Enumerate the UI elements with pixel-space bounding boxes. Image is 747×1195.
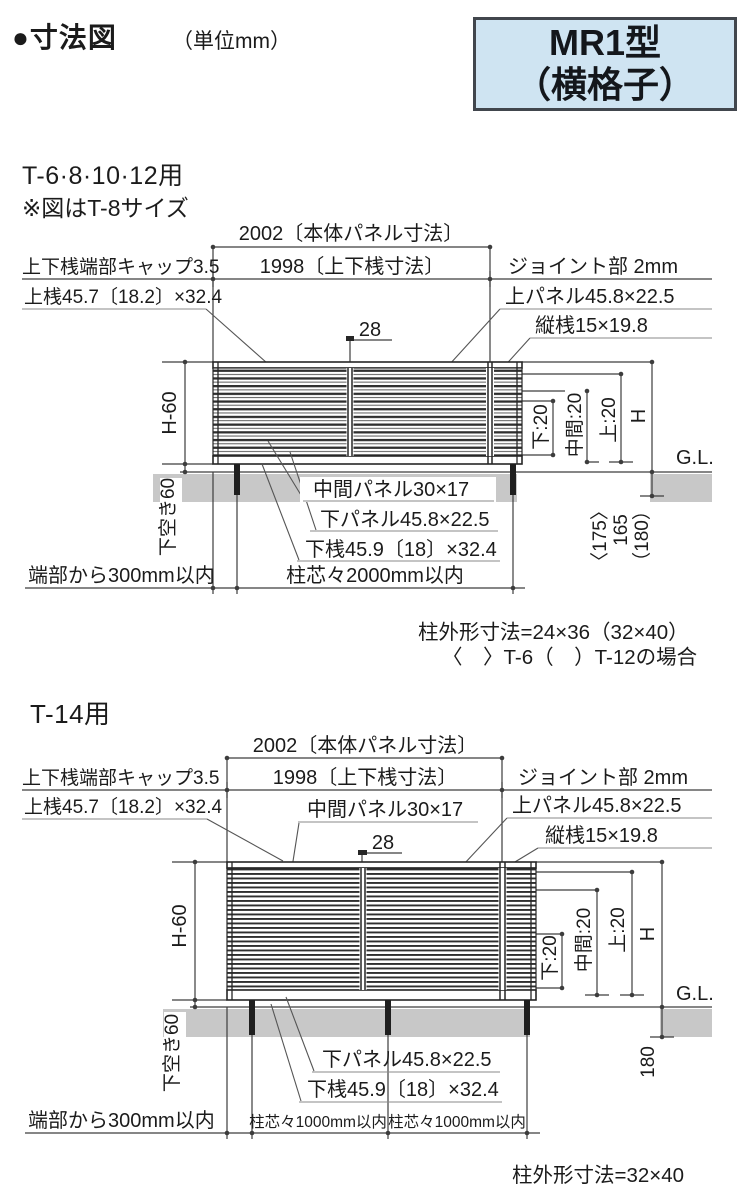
dim-embed: 180 [638, 1046, 659, 1078]
label-vertical-rail: 縦桟15×19.8 [535, 314, 648, 337]
label-bottom-gap: 下空き60 [157, 478, 179, 556]
dim-post-pitch: 柱芯々2000mm以内 [286, 564, 464, 587]
joint-mullion-mask [486, 368, 494, 456]
label-joint: ジョイント部 2mm [518, 766, 688, 789]
bottom-rail [213, 456, 522, 464]
dim-pitch-bottom: 下:20 [540, 935, 561, 980]
dim-28: 28 [359, 319, 381, 341]
joint-cap-marker [346, 336, 354, 341]
dim-panel-width: 2002〔本体パネル寸法〕 [239, 222, 464, 245]
label-mid-panel: 中間パネル30×17 [313, 478, 469, 501]
bottom-rail [227, 990, 536, 1000]
dim-rail-width: 1998〔上下桟寸法〕 [273, 766, 458, 789]
fence-panel-1 [213, 336, 522, 464]
label-top-rail: 上桟45.7〔18.2〕×32.4 [24, 286, 222, 308]
label-ground-level: G.L. [676, 983, 714, 1005]
ground-strip-left [163, 1009, 530, 1037]
dim-total-height: H [637, 927, 659, 941]
drawing-t14: 2002〔本体パネル寸法〕 1998〔上下桟寸法〕 上下桟端部キャップ3.5 ジ… [22, 734, 714, 1139]
dim-pitch-top: 上:20 [598, 397, 620, 442]
catalog-page: ●寸法図 （単位mm） MR1型 （横格子） T-6·8·10·12用 ※図はT… [0, 0, 747, 1195]
label-top-panel: 上パネル45.8×22.5 [505, 285, 675, 308]
label-top-rail: 上桟45.7〔18.2〕×32.4 [24, 796, 222, 818]
dim-edge-offset: 端部から300mm以内 [28, 1109, 215, 1132]
dim-panel-width: 2002〔本体パネル寸法〕 [253, 734, 478, 757]
horizontal-slats [227, 868, 536, 990]
label-end-cap: 上下桟端部キャップ3.5 [22, 767, 219, 789]
dim-h-60: H-60 [169, 904, 191, 947]
label-vertical-rail: 縦桟15×19.8 [545, 824, 658, 847]
drawing-t6-t12: 2002〔本体パネル寸法〕 1998〔上下桟寸法〕 上下桟端部キャップ3.5 ジ… [22, 222, 714, 594]
dim-h-60: H-60 [159, 391, 181, 434]
label-bottom-rail: 下桟45.9〔18〕×32.4 [305, 538, 497, 561]
post [249, 1000, 255, 1035]
post [510, 464, 516, 495]
label-bottom-panel: 下パネル45.8×22.5 [322, 1049, 492, 1071]
dim-post-pitch-1: 柱芯々1000mm以内 [249, 1113, 387, 1131]
label-top-panel: 上パネル45.8×22.5 [512, 794, 682, 817]
dim-total-height: H [628, 409, 650, 423]
ground-strip-right [650, 474, 712, 502]
label-ground-level: G.L. [676, 447, 714, 469]
top-rail [213, 362, 522, 368]
dim-pitch-bottom: 下:20 [531, 404, 552, 449]
dim-pitch-middle: 中間:20 [573, 908, 595, 972]
label-bottom-rail: 下桟45.9〔18〕×32.4 [307, 1078, 499, 1101]
joint-cap-marker [358, 850, 367, 855]
horizontal-slats [213, 368, 522, 456]
dim-embed: 165 [611, 514, 632, 546]
top-rail [227, 862, 536, 868]
label-end-cap: 上下桟端部キャップ3.5 [22, 256, 219, 278]
dim-embed-t6: 〈175〉 [589, 501, 611, 571]
dim-rail-width: 1998〔上下桟寸法〕 [260, 255, 445, 278]
label-mid-panel: 中間パネル30×17 [307, 798, 463, 821]
post [524, 1000, 530, 1035]
dim-pitch-middle: 中間:20 [564, 393, 586, 457]
dim-pitch-top: 上:20 [607, 907, 629, 952]
dim-post-pitch-2: 柱芯々1000mm以内 [388, 1113, 526, 1131]
dim-edge-offset: 端部から300mm以内 [28, 564, 215, 587]
label-bottom-gap: 下空き60 [161, 1014, 183, 1092]
post [385, 1000, 391, 1035]
dim-embed-t12: （180） [631, 501, 653, 571]
dim-28: 28 [372, 832, 394, 854]
dimension-drawings: 2002〔本体パネル寸法〕 1998〔上下桟寸法〕 上下桟端部キャップ3.5 ジ… [0, 0, 747, 1195]
ground-strip-right [660, 1009, 712, 1037]
post [234, 464, 240, 495]
fence-panel-2 [227, 850, 536, 1000]
label-bottom-panel: 下パネル45.8×22.5 [320, 509, 490, 531]
label-joint: ジョイント部 2mm [508, 255, 678, 278]
